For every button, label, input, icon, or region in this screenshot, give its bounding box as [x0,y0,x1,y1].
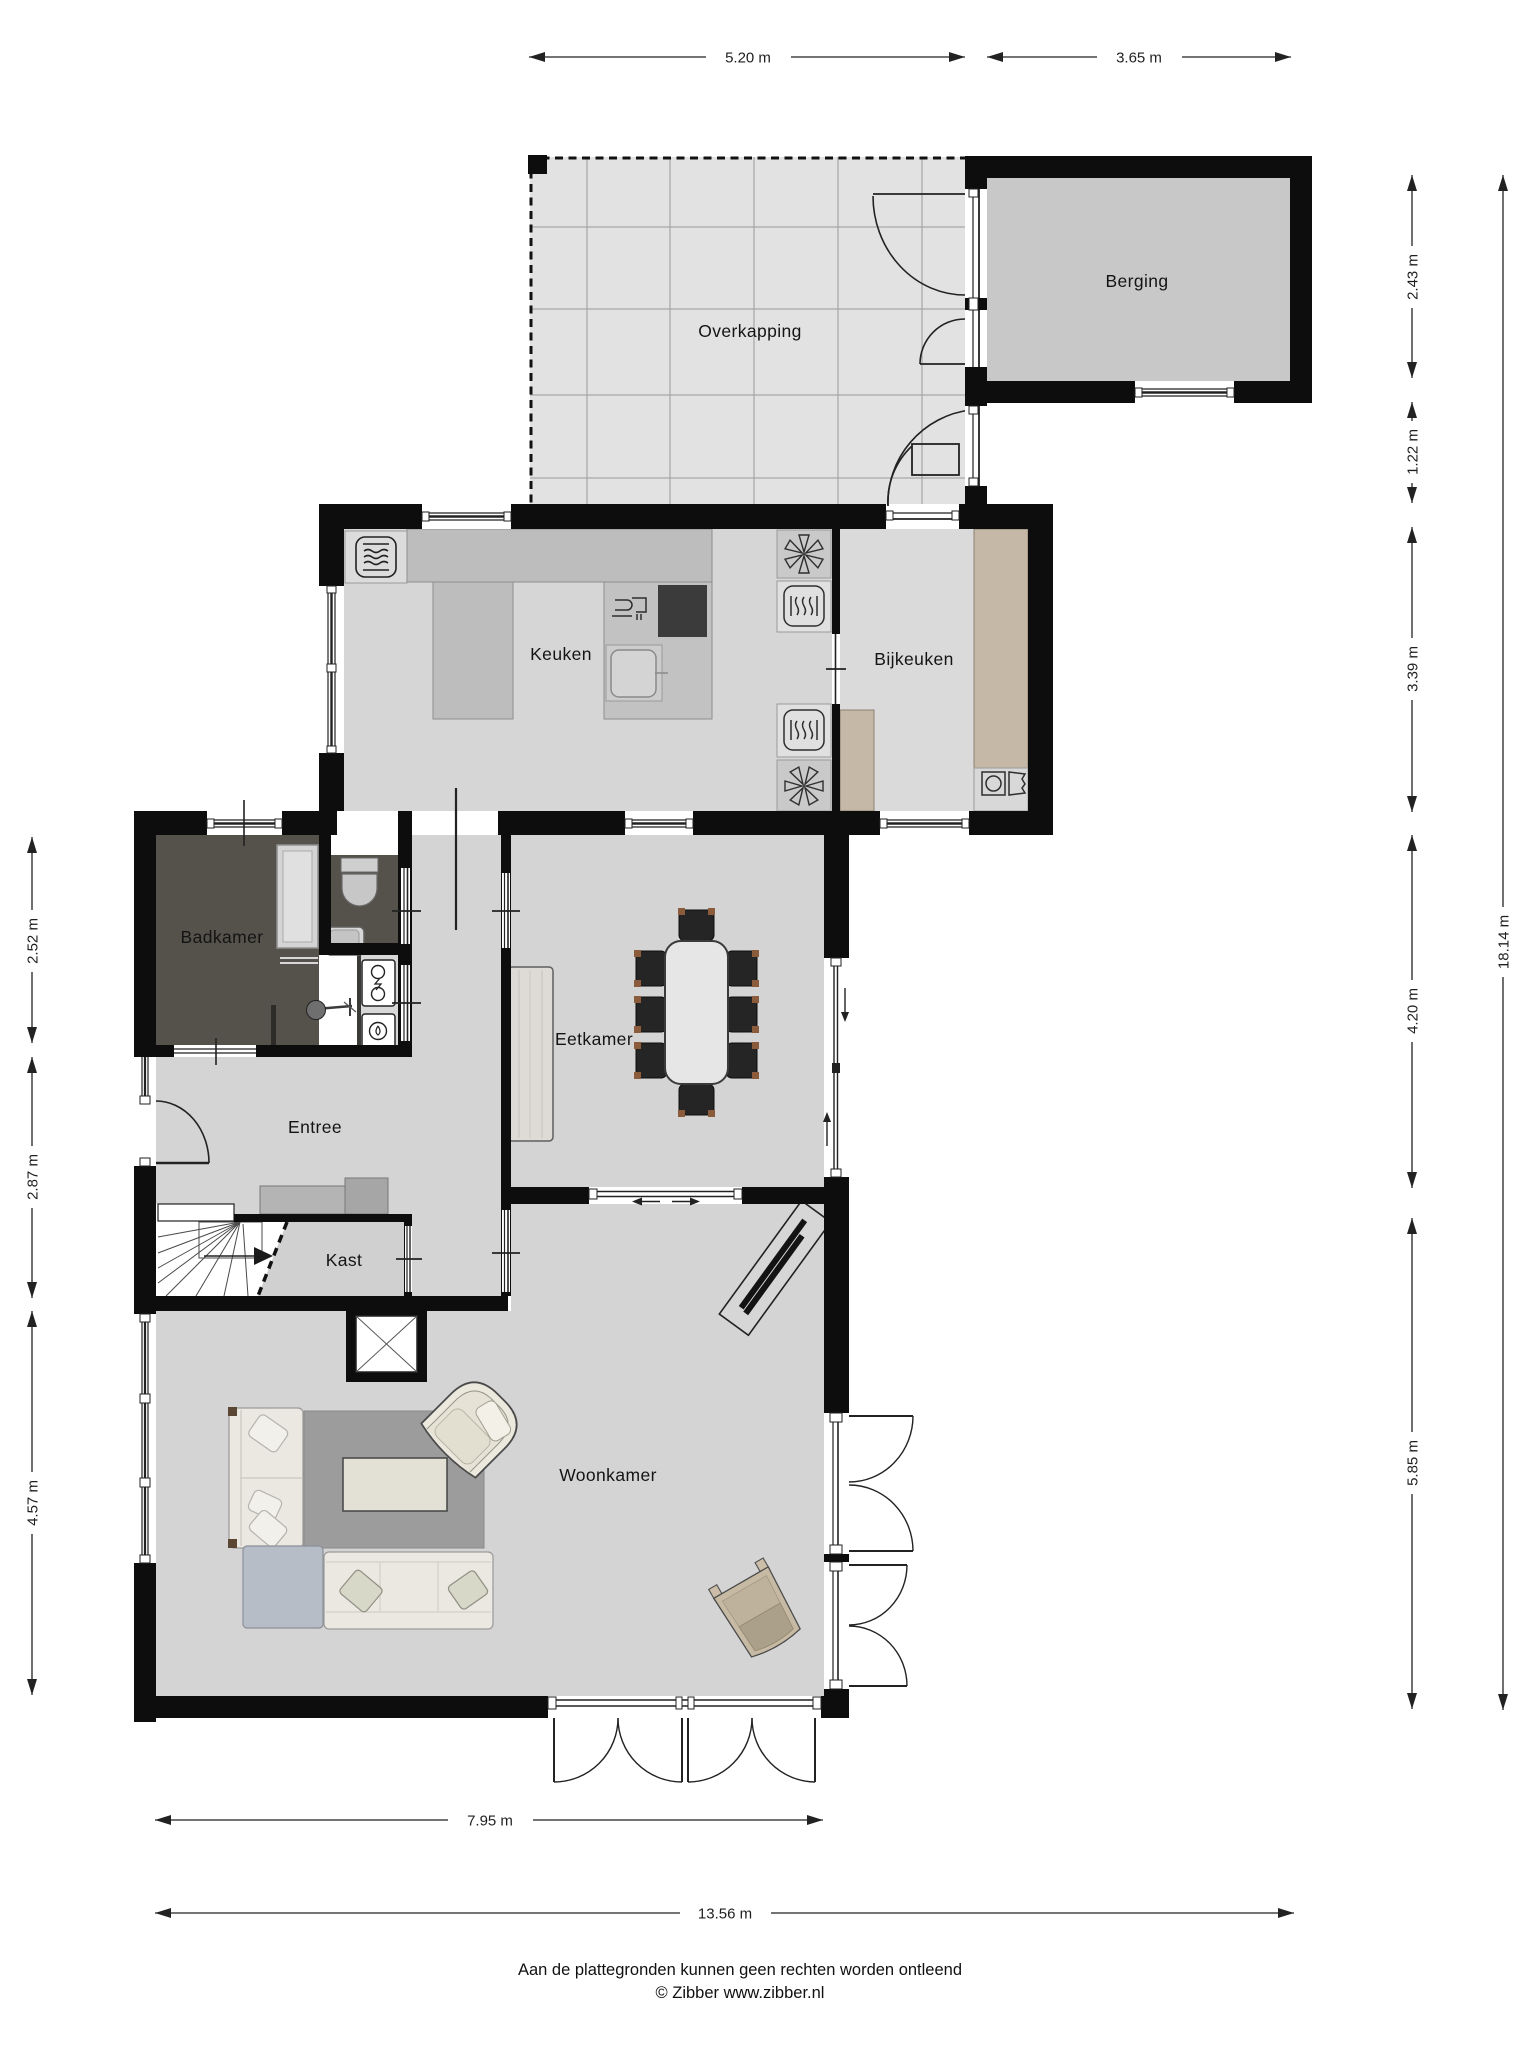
svg-text:5.20 m: 5.20 m [725,50,771,67]
svg-text:Keuken: Keuken [530,644,592,664]
svg-text:18.14 m: 18.14 m [1496,915,1513,969]
svg-text:13.56 m: 13.56 m [698,1906,752,1923]
svg-text:Entree: Entree [288,1117,342,1137]
svg-text:2.87 m: 2.87 m [25,1154,42,1200]
svg-text:4.57 m: 4.57 m [25,1480,42,1526]
svg-text:Berging: Berging [1105,271,1168,291]
svg-text:Woonkamer: Woonkamer [559,1465,657,1485]
svg-text:3.39 m: 3.39 m [1405,646,1422,692]
svg-text:5.85 m: 5.85 m [1405,1440,1422,1486]
svg-text:Badkamer: Badkamer [181,927,264,947]
svg-text:4.20 m: 4.20 m [1405,988,1422,1034]
svg-text:Overkapping: Overkapping [698,321,802,341]
svg-text:3.65 m: 3.65 m [1116,50,1162,67]
svg-text:1.22 m: 1.22 m [1405,429,1422,475]
svg-text:2.43 m: 2.43 m [1405,254,1422,300]
svg-text:© Zibber www.zibber.nl: © Zibber www.zibber.nl [656,1984,825,2002]
svg-text:Bijkeuken: Bijkeuken [874,649,953,669]
svg-text:Eetkamer: Eetkamer [555,1029,633,1049]
svg-text:Kast: Kast [326,1250,363,1270]
svg-text:2.52 m: 2.52 m [25,918,42,964]
svg-text:7.95 m: 7.95 m [467,1813,513,1830]
svg-text:Aan de plattegronden kunnen ge: Aan de plattegronden kunnen geen rechten… [518,1961,962,1979]
